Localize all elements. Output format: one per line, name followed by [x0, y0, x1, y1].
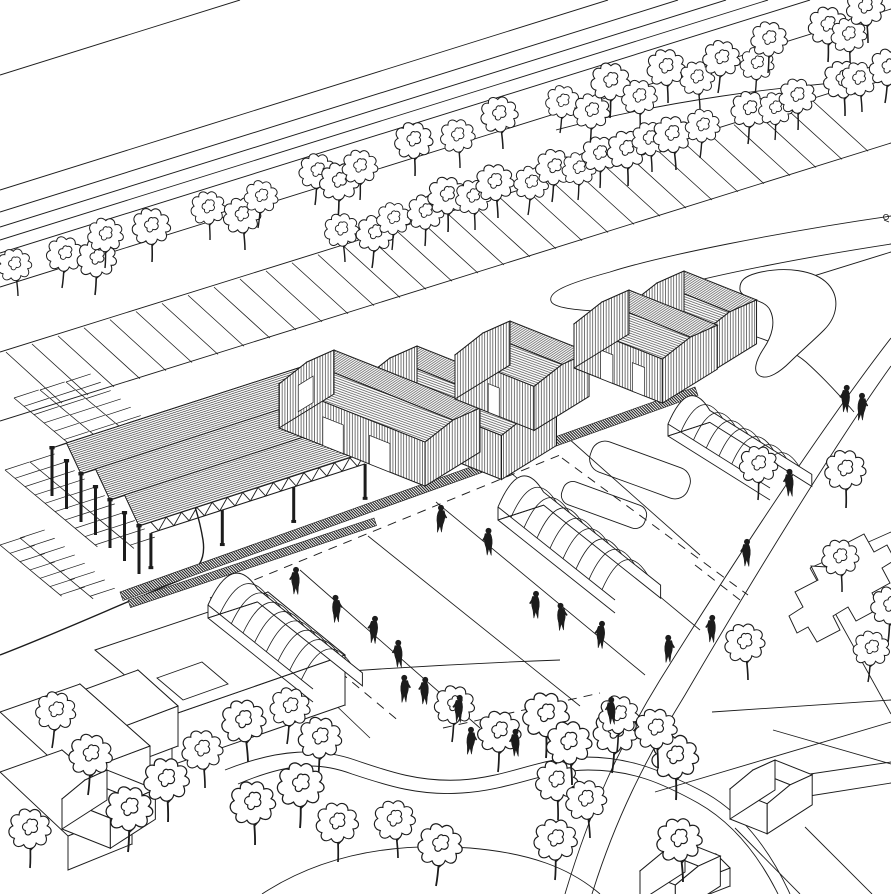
person-figure	[419, 677, 429, 705]
tree-icon	[479, 95, 522, 151]
railway-tree-rows	[0, 0, 891, 298]
person-figure	[557, 603, 567, 631]
tree-icon	[824, 450, 866, 508]
person-figure	[783, 469, 793, 497]
person-figure	[706, 615, 716, 643]
tree-icon	[0, 247, 35, 297]
person-figure	[392, 640, 403, 668]
tree-icon	[533, 819, 577, 880]
person-figure	[436, 505, 447, 533]
tree-icon	[830, 18, 867, 69]
person-figure	[530, 591, 539, 619]
quonset-2	[498, 476, 661, 613]
tree-icon	[474, 163, 517, 220]
person-figure	[857, 393, 868, 421]
person-figure	[290, 567, 299, 595]
person-figure	[332, 595, 342, 623]
person-figure	[741, 539, 750, 567]
warehouse-c	[574, 271, 757, 403]
tree-icon	[394, 122, 434, 177]
tree-icon	[439, 118, 477, 169]
site-plan-drawing: Black and white axonometric architectura…	[0, 0, 891, 894]
axonometric-site-plan	[0, 0, 891, 894]
tree-icon	[739, 446, 778, 500]
person-figure	[367, 615, 378, 643]
tree-icon	[683, 108, 722, 159]
house-1	[730, 760, 812, 834]
tree-icon	[779, 79, 816, 131]
person-figure	[401, 675, 411, 703]
tree-icon	[9, 809, 51, 868]
tree-icon	[277, 763, 325, 829]
tree-icon	[132, 208, 171, 262]
tree-icon	[190, 191, 227, 241]
tree-icon	[850, 630, 891, 684]
tree-icon	[723, 622, 768, 681]
person-figure	[839, 385, 850, 413]
tree-icon	[414, 822, 465, 888]
tree-icon	[229, 780, 278, 846]
tree-icon	[316, 803, 359, 863]
person-figure	[466, 727, 477, 755]
